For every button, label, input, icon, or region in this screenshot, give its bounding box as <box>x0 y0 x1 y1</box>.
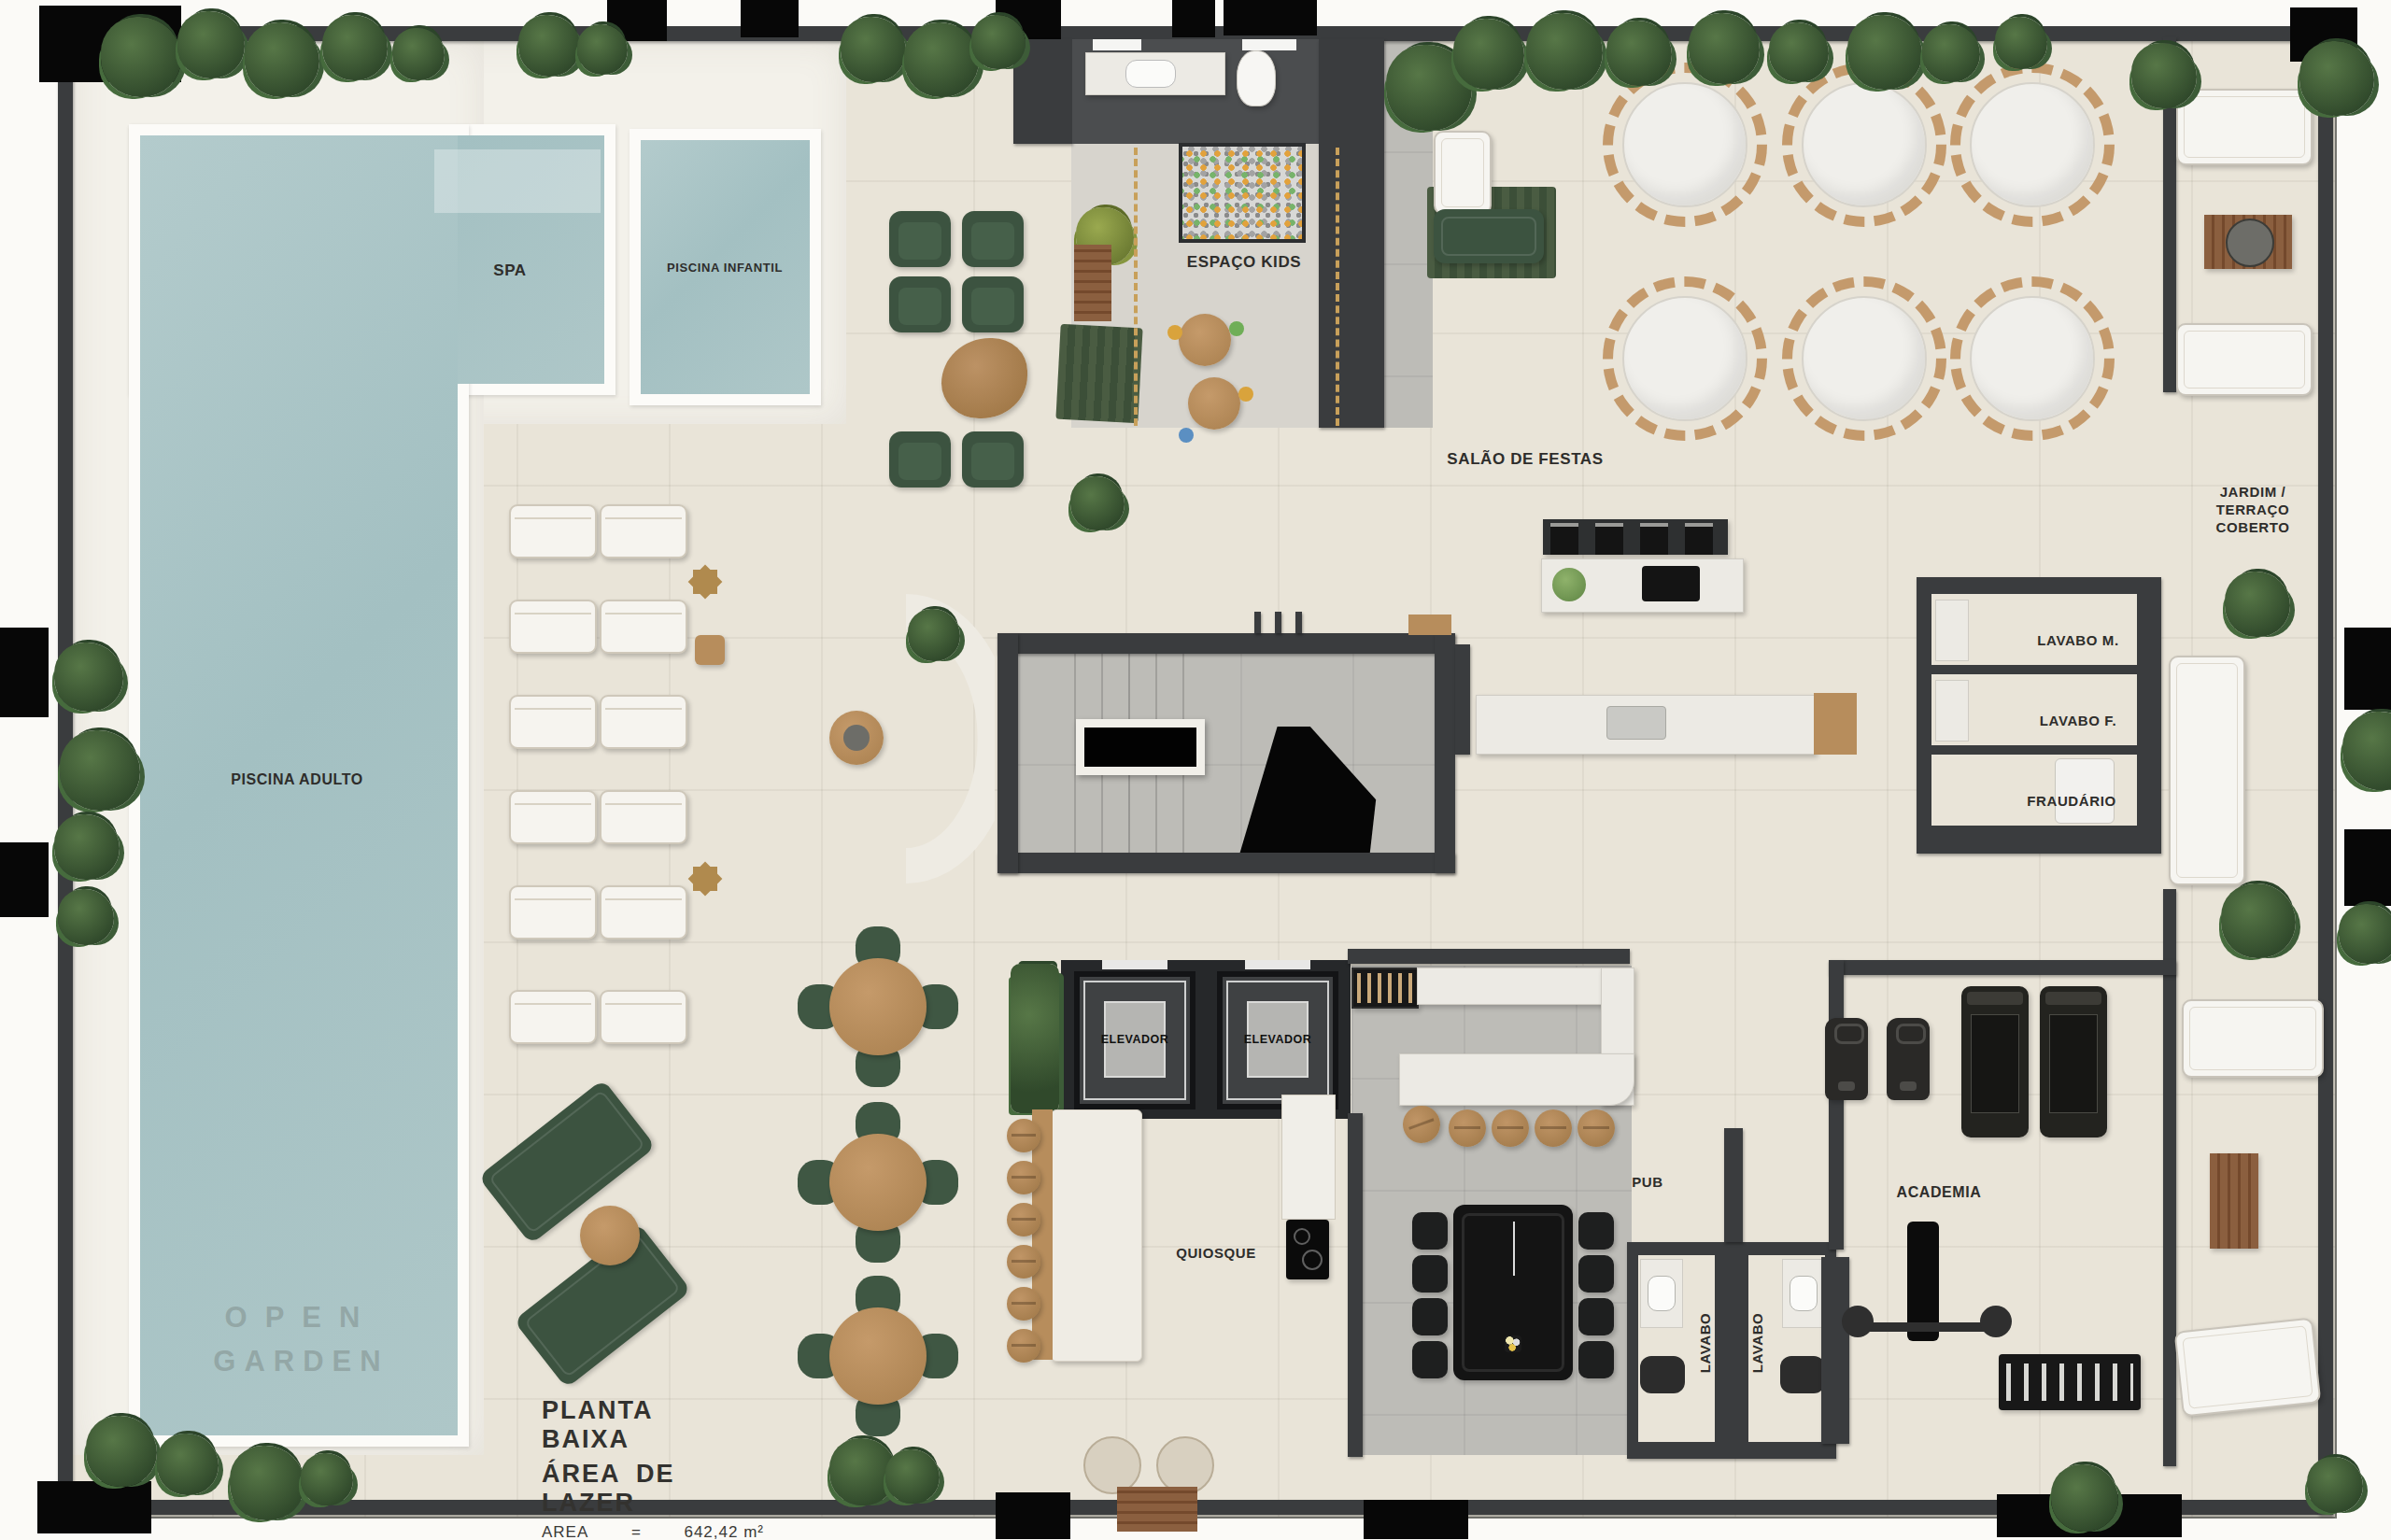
wood-table <box>1117 1487 1197 1532</box>
label-academia: ACADEMIA <box>1896 1183 1981 1202</box>
table-top-dark <box>843 725 870 751</box>
column-block <box>0 628 49 717</box>
banquet-table <box>1950 276 2115 441</box>
lounger <box>600 790 687 844</box>
plant <box>54 643 123 712</box>
plant <box>60 730 140 811</box>
elevator-car: ELEVADOR <box>1104 1001 1166 1078</box>
cooktop <box>1286 1220 1329 1279</box>
plant <box>841 17 906 82</box>
bar-stool <box>1007 1329 1040 1363</box>
lounger <box>600 695 687 749</box>
wood-bench <box>1074 245 1111 321</box>
plant <box>245 22 319 97</box>
coffee-machine <box>1550 523 1578 555</box>
coffee-table <box>580 1206 640 1265</box>
elevator-label: ELEVADOR <box>1101 1033 1169 1046</box>
armchair <box>889 211 951 267</box>
wall-quiosque <box>1348 1113 1363 1457</box>
cue-stick <box>1513 1222 1515 1276</box>
garden-white-sofa <box>2174 1317 2322 1417</box>
plant <box>54 814 120 880</box>
elevator-label: ELEVADOR <box>1244 1033 1312 1046</box>
garden-wood-table <box>2210 1153 2258 1249</box>
marble-top <box>1622 82 1747 207</box>
label-lavabo-f: LAVABO F. <box>2040 713 2116 730</box>
wc-basin <box>1790 1276 1818 1311</box>
exercise-bike <box>1825 1018 1868 1100</box>
plant <box>2131 43 2197 108</box>
banquet-table <box>1950 63 2115 227</box>
bar-stool <box>1007 1287 1040 1321</box>
elevator-door-gap <box>1102 960 1167 969</box>
coffee-counter <box>1543 519 1728 555</box>
gym-shaft <box>1821 1257 1849 1444</box>
column-block <box>2344 628 2391 710</box>
wall-gym-left <box>1829 960 1844 1250</box>
weight-plate <box>1980 1306 2012 1337</box>
column-block <box>741 0 799 37</box>
treadmill <box>2040 986 2107 1137</box>
chaise-white <box>1434 131 1492 215</box>
column-block <box>996 1492 1070 1539</box>
kitchen-cabinet <box>1814 693 1857 755</box>
lounger <box>600 504 687 558</box>
label-lavabo: LAVABO <box>1697 1313 1715 1374</box>
banquet-table <box>1603 276 1767 441</box>
hall-wall <box>997 633 1455 654</box>
plant <box>392 28 445 80</box>
marble-top <box>1802 82 1927 207</box>
round-chair <box>1156 1436 1214 1494</box>
plant <box>2339 904 2391 964</box>
lounger <box>600 600 687 654</box>
plant <box>2221 883 2296 958</box>
wall-gym-top <box>1829 960 2176 975</box>
wall-kitchen <box>1455 644 1470 755</box>
plant <box>86 1416 157 1487</box>
wall-garden <box>2163 971 2176 1466</box>
dumbbell-rack <box>1999 1354 2141 1410</box>
wall-pub-top <box>1348 949 1630 964</box>
plant <box>2225 572 2290 637</box>
sun-ornament-icon <box>693 570 717 594</box>
plant <box>908 609 960 661</box>
marble-top <box>1622 296 1747 421</box>
plant <box>1689 13 1760 84</box>
pub-chair <box>1412 1341 1448 1378</box>
watermark-line2: GARDEN <box>182 1340 420 1384</box>
armchair <box>962 431 1024 487</box>
lounger <box>509 695 597 749</box>
plan-title: PLANTA BAIXA <box>542 1396 764 1454</box>
armchair <box>962 276 1024 332</box>
dining-table <box>829 958 927 1055</box>
kids-table <box>1179 314 1231 366</box>
hall-wall <box>997 853 1455 873</box>
armchair <box>889 276 951 332</box>
window-sill <box>1093 39 1141 50</box>
coffee-machine <box>1640 523 1668 555</box>
label-lavabo: LAVABO <box>1749 1313 1767 1374</box>
barbell <box>1853 1322 2001 1332</box>
plant <box>1847 15 1922 90</box>
lounger <box>600 990 687 1044</box>
elevator: ELEVADOR <box>1074 971 1195 1109</box>
lounger <box>509 990 597 1044</box>
label-fraudario: FRAUDÁRIO <box>2027 793 2115 811</box>
sofa-green <box>1434 209 1544 263</box>
pub-chair <box>1578 1341 1614 1378</box>
toilet <box>1237 50 1276 106</box>
ball-pit <box>1179 143 1306 243</box>
changing-pad <box>2055 758 2115 824</box>
plant <box>1769 22 1829 82</box>
bar-stool <box>1007 1119 1040 1152</box>
plant <box>230 1446 304 1520</box>
plant <box>58 889 114 945</box>
rug <box>1055 324 1142 423</box>
wc-divider <box>1724 1128 1743 1242</box>
plant <box>301 1453 353 1505</box>
pub-chair <box>1578 1298 1614 1335</box>
label-espaco-kids: ESPAÇO KIDS <box>1187 252 1301 272</box>
dining-table <box>829 1134 927 1231</box>
hall-wall <box>997 633 1018 873</box>
armchair <box>889 431 951 487</box>
planter-strip <box>1011 964 1059 1113</box>
floor-plan: OPEN GARDEN <box>0 0 2391 1540</box>
column-block <box>2344 829 2391 906</box>
elevator-door-gap <box>1245 960 1310 969</box>
label-pub: PUB <box>1632 1174 1662 1192</box>
plant <box>177 11 245 78</box>
plant <box>2051 1464 2118 1532</box>
exercise-bike <box>1887 1018 1930 1100</box>
kids-chair <box>1229 321 1244 336</box>
watermark: OPEN GARDEN <box>182 1296 420 1383</box>
pub-chair <box>1578 1212 1614 1250</box>
watermark-line1: OPEN <box>182 1296 420 1340</box>
bar-stool <box>1535 1109 1572 1147</box>
plan-subtitle: ÁREA DE LAZER <box>542 1460 764 1518</box>
marble-top <box>1970 82 2095 207</box>
lounger <box>509 885 597 940</box>
fruit-bowl <box>1552 568 1586 601</box>
glass-line <box>1336 148 1339 426</box>
banquet-table <box>1603 63 1767 227</box>
column-block <box>1172 0 1215 37</box>
stair-void <box>1076 719 1205 775</box>
label-lavabo-m: LAVABO M. <box>2037 632 2118 650</box>
area-value: 642,42 m² <box>684 1523 764 1540</box>
bar-stool <box>1007 1245 1040 1279</box>
bar-stool <box>1449 1109 1486 1147</box>
side-table <box>695 635 725 665</box>
quiosque-cabinet <box>1281 1095 1336 1220</box>
window-sill <box>1242 39 1296 50</box>
plan-area-line: AREA = 642,42 m² <box>542 1523 764 1540</box>
serving-tray <box>1642 566 1700 601</box>
hall-wall <box>1435 633 1455 873</box>
kids-chair <box>1179 428 1194 443</box>
area-label: AREA <box>542 1523 588 1540</box>
plant <box>1995 17 2047 69</box>
banquet-table <box>1782 276 1946 441</box>
wc-basin <box>1125 60 1176 88</box>
plant <box>101 17 181 97</box>
label-spa: SPA <box>493 261 527 280</box>
dining-table <box>829 1307 927 1405</box>
label-piscina-infantil: PISCINA INFANTIL <box>667 261 783 276</box>
baluster <box>1254 612 1261 633</box>
pub-chair <box>1412 1255 1448 1293</box>
plant <box>904 22 979 97</box>
bar-stool <box>1007 1203 1040 1236</box>
kids-table <box>1188 377 1240 430</box>
plant <box>157 1434 219 1495</box>
weight-plate <box>1842 1306 1874 1337</box>
lounger <box>600 885 687 940</box>
glass-line <box>1134 148 1138 426</box>
plant <box>1922 24 1980 82</box>
baluster <box>1275 612 1281 633</box>
kids-chair <box>1238 387 1253 402</box>
billiards-table <box>1453 1205 1573 1380</box>
round-chair <box>1083 1436 1141 1494</box>
bar-stool <box>1577 1109 1615 1147</box>
plant <box>971 15 1026 69</box>
column-block <box>1224 0 1317 35</box>
quiosque-counter <box>1051 1109 1142 1362</box>
plant <box>1526 13 1603 90</box>
pub-chair <box>1412 1298 1448 1335</box>
plant <box>1606 21 1672 86</box>
wall-kids-right <box>1319 39 1384 428</box>
lounger <box>509 790 597 844</box>
garden-white-sofa <box>2169 656 2245 885</box>
plant <box>885 1449 940 1504</box>
garden-white-sofa <box>2176 323 2313 396</box>
treadmill <box>1961 986 2029 1137</box>
pub-chair <box>1578 1255 1614 1293</box>
elevator-car: ELEVADOR <box>1247 1001 1309 1078</box>
marble-top <box>1802 296 1927 421</box>
wc-toilet <box>1780 1356 1825 1393</box>
column-block <box>37 1481 151 1533</box>
plant <box>577 24 628 75</box>
lavabo-counter <box>1935 680 1969 742</box>
label-quiosque: QUIOSQUE <box>1176 1245 1256 1263</box>
label-jardim-terraco: JARDIM / TERRAÇO COBERTO <box>2216 484 2290 536</box>
wc-toilet <box>1640 1356 1685 1393</box>
plant <box>2342 712 2391 790</box>
coffee-machine <box>1595 523 1623 555</box>
garden-white-sofa <box>2182 999 2324 1078</box>
wc-basin <box>1648 1276 1676 1311</box>
column-block <box>0 842 49 917</box>
column-block <box>1364 1500 1468 1539</box>
garden-white-sofa <box>2176 89 2313 165</box>
sun-ornament-icon <box>693 867 717 891</box>
plant <box>322 15 388 80</box>
area-equals: = <box>631 1523 642 1540</box>
spa-bench-ledge <box>434 149 601 213</box>
lavabo-counter <box>1935 600 1969 661</box>
wall-right <box>2318 26 2333 1515</box>
pub-back-counter <box>1417 968 1606 1005</box>
wall-garden <box>2163 889 2176 971</box>
armchair <box>962 211 1024 267</box>
bar-stool <box>1007 1161 1040 1194</box>
lounger <box>509 504 597 558</box>
kitchen-sink <box>1606 706 1666 740</box>
pub-chair <box>1412 1212 1448 1250</box>
wood-step <box>1408 615 1451 635</box>
label-salao-de-festas: SALÃO DE FESTAS <box>1447 449 1603 469</box>
label-piscina-adulto: PISCINA ADULTO <box>231 770 363 789</box>
plant <box>2307 1457 2363 1513</box>
plant <box>2299 41 2374 116</box>
plant <box>1453 19 1524 90</box>
coffee-machine <box>1685 523 1713 555</box>
pub-front-counter <box>1399 1053 1634 1106</box>
elevator: ELEVADOR <box>1217 971 1338 1109</box>
bar-stool <box>1492 1109 1529 1147</box>
kids-chair <box>1167 325 1182 340</box>
garden-table-top <box>2226 219 2274 267</box>
lounger <box>509 600 597 654</box>
title-block: PLANTA BAIXA ÁREA DE LAZER AREA = 642,42… <box>542 1396 764 1540</box>
plant <box>1070 476 1125 530</box>
bottle-shelf <box>1351 968 1419 1009</box>
baluster <box>1295 612 1302 633</box>
banquet-table <box>1782 63 1946 227</box>
marble-top <box>1970 296 2095 421</box>
plant <box>518 15 580 77</box>
